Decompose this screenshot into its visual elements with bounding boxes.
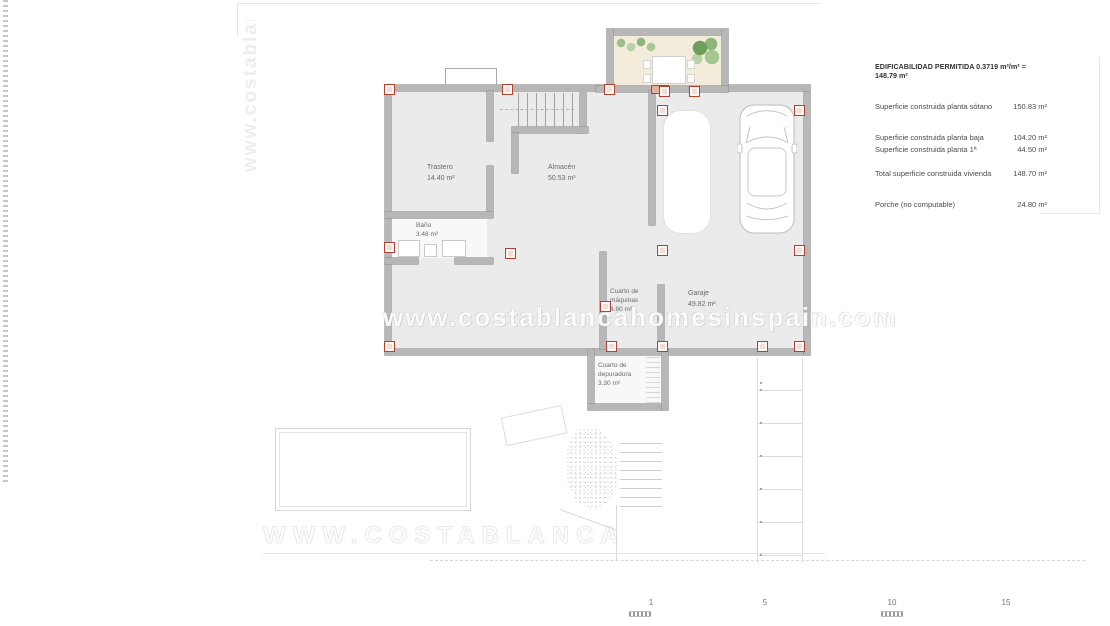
room-name: Trastero <box>427 163 455 174</box>
room-name: Baño <box>416 221 438 230</box>
wall <box>662 349 668 410</box>
wall <box>588 404 668 410</box>
wall <box>722 29 728 92</box>
area-value: 44.50 m² <box>1017 145 1047 154</box>
pillar-marker <box>657 245 668 256</box>
wall <box>487 166 493 212</box>
room-label-depuradora: Cuarto de depuradora 3.30 m² <box>598 361 646 388</box>
room-area: 50.53 m² <box>548 174 576 185</box>
room-name: Almacén <box>548 163 576 174</box>
room-label-trastero: Trastero 14.40 m² <box>427 163 455 184</box>
plants-icon <box>616 37 658 54</box>
scale-segment <box>629 611 651 617</box>
pillar-marker <box>502 84 513 95</box>
wall <box>722 85 810 91</box>
margin-microtext <box>3 0 8 482</box>
sheet-border-top <box>237 3 820 4</box>
scale-label: 15 <box>1002 598 1011 607</box>
chair <box>643 60 651 69</box>
scale-bar: 1 5 10 15 <box>618 598 1022 620</box>
scale-label: 1 <box>649 598 653 607</box>
room-area: 3.48 m² <box>416 230 438 239</box>
room-label-almacen: Almacén 50.53 m² <box>548 163 576 184</box>
pillar-marker <box>794 245 805 256</box>
drawing-sheet: www.costablancahomesinspain.com Trastero… <box>0 0 1110 626</box>
sheet-border-left <box>237 3 238 36</box>
room-name: Cuarto de depuradora <box>598 361 646 379</box>
area-row-baja: Superficie construida planta baja 104.20… <box>875 133 1047 142</box>
wall <box>607 29 613 92</box>
wall <box>512 127 588 133</box>
car-top-view-icon <box>737 103 797 235</box>
area-value: 150.83 m² <box>1013 102 1047 111</box>
area-value: 104.20 m² <box>1013 133 1047 142</box>
bathroom-fixture <box>398 240 420 257</box>
wall <box>385 85 611 91</box>
area-label: Superficie construida planta baja <box>875 133 984 142</box>
stair-walkline <box>500 109 574 110</box>
chair <box>687 74 695 83</box>
area-label: Porche (no computable) <box>875 200 955 209</box>
watermark-outline: www.costablancahomesinspain.com <box>263 522 625 550</box>
wall <box>385 258 418 264</box>
area-row-porche: Porche (no computable) 24.80 m² <box>875 200 1047 209</box>
scale-label: 10 <box>888 598 897 607</box>
site-line <box>263 553 825 554</box>
pillar-marker <box>604 84 615 95</box>
chair <box>687 60 695 69</box>
pillar-marker <box>757 341 768 352</box>
pillar-marker <box>794 341 805 352</box>
sheet-border-corner <box>1040 213 1100 214</box>
wall <box>649 91 655 225</box>
wall <box>385 349 810 355</box>
chair <box>643 74 651 83</box>
pool-outline <box>275 428 471 511</box>
room-name: Garaje <box>688 289 716 300</box>
parked-car-outline <box>501 405 568 446</box>
area-table: EDIFICABILIDAD PERMITIDA 0.3719 m²/m² = … <box>875 62 1047 209</box>
wall <box>607 29 728 35</box>
area-row-total: Total superficie construida vivienda 148… <box>875 169 1047 178</box>
pillar-marker <box>689 86 700 97</box>
pillar-marker <box>657 341 668 352</box>
scale-label: 5 <box>763 598 767 607</box>
sheet-border-right <box>1099 57 1100 214</box>
area-row-planta1: Superficie construida planta 1ª 44.50 m² <box>875 145 1047 154</box>
scale-segment <box>881 611 903 617</box>
patio-table <box>652 56 686 84</box>
pillar-marker <box>606 341 617 352</box>
area-label: Total superficie construida vivienda <box>875 169 991 178</box>
stairs <box>518 93 580 127</box>
window-hatch <box>646 357 660 403</box>
pillar-marker <box>384 84 395 95</box>
vegetation-patch <box>566 428 618 508</box>
room-label-bano: Baño 3.48 m² <box>416 221 438 239</box>
exterior-steps <box>620 443 662 507</box>
wall <box>512 133 518 173</box>
wall <box>588 349 594 410</box>
pillar-marker <box>659 86 670 97</box>
car-silhouette <box>663 110 711 234</box>
pillar-marker <box>384 341 395 352</box>
area-label: Superficie construida planta sótano <box>875 102 992 111</box>
area-row-sotano: Superficie construida planta sótano 150.… <box>875 102 1047 111</box>
bathroom-fixture <box>442 240 466 257</box>
area-table-title: EDIFICABILIDAD PERMITIDA 0.3719 m²/m² = … <box>875 62 1047 80</box>
area-label: Superficie construida planta 1ª <box>875 145 977 154</box>
wall <box>385 212 493 218</box>
pillar-marker <box>505 248 516 259</box>
lightwell <box>445 68 497 86</box>
pillar-marker <box>794 105 805 116</box>
area-value: 148.70 m² <box>1013 169 1047 178</box>
bathroom-fixture <box>424 244 437 257</box>
vertical-watermark: www.costablancahomesinspain.com <box>240 20 262 172</box>
room-area: 3.30 m² <box>598 379 646 388</box>
driveway-ramp <box>757 358 803 563</box>
area-value: 24.80 m² <box>1017 200 1047 209</box>
wall <box>455 258 493 264</box>
watermark: www.costablancahomesinspain.com <box>383 302 943 333</box>
pillar-marker <box>657 105 668 116</box>
room-area: 14.40 m² <box>427 174 455 185</box>
pillar-marker <box>384 242 395 253</box>
wall <box>487 91 493 141</box>
